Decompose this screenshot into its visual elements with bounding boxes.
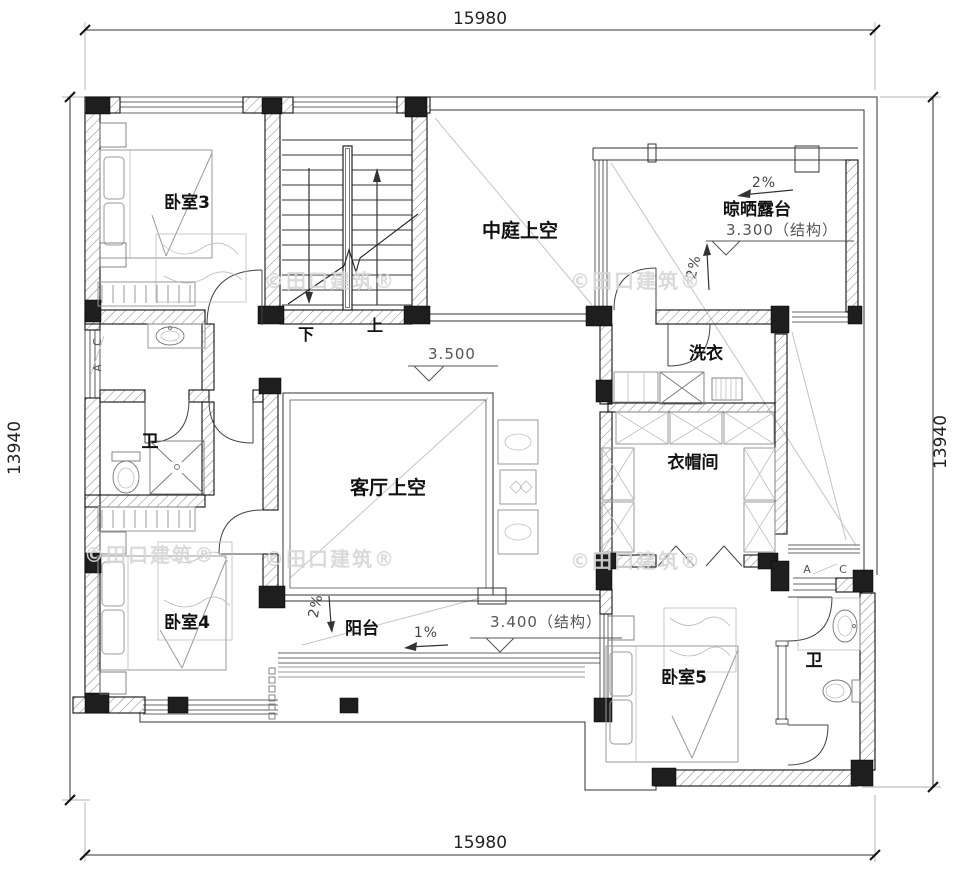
atrium-void-edge xyxy=(430,314,586,321)
room-label-closet: 衣帽间 xyxy=(668,452,719,473)
slope-balcony-side-label: 2% xyxy=(306,592,327,619)
level-marker-floor: 3.500 xyxy=(408,345,498,381)
door-bedroom3 xyxy=(207,270,262,325)
room-label-bath-left: 卫 xyxy=(142,432,159,452)
slope-terrace-top: 2% xyxy=(737,175,793,198)
dim-left-label: 13940 xyxy=(5,421,25,475)
room-label-bedroom4: 卧室4 xyxy=(164,612,210,633)
slope-terrace-top-label: 2% xyxy=(752,175,776,191)
room-labels: 卧室3 中庭上空 晾晒露台 洗衣 卫 客厅上空 衣帽间 卧室4 阳台 卧室5 卫 xyxy=(142,192,823,688)
level-marker-balcony: 3.400（结构） xyxy=(470,613,622,652)
watermark-text: ©田口建筑® xyxy=(570,549,702,573)
railing-posts xyxy=(269,668,275,719)
room-label-laundry: 洗衣 xyxy=(689,343,723,364)
window-tag-c: C xyxy=(91,338,104,346)
window-right-terrace xyxy=(788,545,860,553)
watermark-text: ©田口建筑® xyxy=(264,269,396,293)
dim-bottom-label: 15980 xyxy=(453,833,507,853)
level-floor-label: 3.500 xyxy=(428,345,476,363)
rug-bedroom5 xyxy=(664,608,736,672)
room-label-living: 客厅上空 xyxy=(350,476,426,499)
bath-right-fixtures xyxy=(798,598,860,702)
washing-machine xyxy=(660,372,704,404)
window-laundry-top xyxy=(792,312,854,322)
watermark-text: ©田口建筑® xyxy=(264,547,396,571)
floor-plan-svg: 15980 15980 13940 13940 xyxy=(0,0,960,880)
vanity-sink-left xyxy=(148,324,205,348)
level-terrace-label: 3.300（结构） xyxy=(726,221,838,239)
window-tag-a2: A xyxy=(803,563,811,576)
window-tag-right: A C xyxy=(803,563,847,576)
dimension-top: 15980 xyxy=(80,9,880,90)
slope-balcony-side: 2% xyxy=(306,592,335,633)
window-tag-c2: C xyxy=(839,563,847,576)
window-balcony-south xyxy=(278,653,600,663)
window-tag-left: A C xyxy=(91,336,104,374)
dim-right-label: 13940 xyxy=(931,415,951,469)
room-label-balcony: 阳台 xyxy=(345,618,379,639)
slope-balcony-main-label: 1% xyxy=(414,625,438,641)
window-bath-right-top xyxy=(793,578,836,590)
room-label-bath-right: 卫 xyxy=(806,651,823,671)
dryer xyxy=(712,378,742,400)
stair-down-label: 下 xyxy=(298,325,314,344)
partition-bedroom5-bath xyxy=(776,641,788,724)
watermark-text: ©田口建筑® xyxy=(84,543,216,567)
dim-top-label: 15980 xyxy=(453,9,507,29)
room-label-atrium: 中庭上空 xyxy=(482,219,558,242)
dimension-bottom: 15980 xyxy=(80,795,880,862)
nightstand xyxy=(100,672,126,694)
planters xyxy=(498,420,538,554)
wardrobe-bedroom4 xyxy=(98,507,195,531)
level-marker-terrace: 3.300（结构） xyxy=(706,221,854,255)
toilet-left xyxy=(112,452,140,493)
laundry-counter xyxy=(614,372,658,402)
window-stair-top xyxy=(293,97,397,113)
room-label-bedroom5: 卧室5 xyxy=(661,667,707,688)
watermark-text: ©田口建筑® xyxy=(570,269,702,293)
rug-bedroom3 xyxy=(156,234,246,302)
window-bedroom4-bottom xyxy=(143,700,278,714)
doors xyxy=(145,268,832,765)
door-bath-right-top xyxy=(788,597,832,641)
door-bath-right-bottom xyxy=(788,725,828,765)
nightstand xyxy=(100,123,126,147)
closet-cabinets xyxy=(602,412,775,552)
door-bedroom4 xyxy=(219,510,263,554)
door-hall-bath-left xyxy=(209,400,253,443)
stair-up-label: 上 xyxy=(367,316,383,335)
nightstand xyxy=(100,243,126,267)
room-label-bedroom3: 卧室3 xyxy=(164,192,210,213)
room-label-terrace: 晾晒露台 xyxy=(723,199,791,220)
balcony-railing xyxy=(269,667,585,719)
window-bedroom3-top xyxy=(120,97,243,113)
window-tag-a: A xyxy=(91,364,104,372)
level-balcony-label: 3.400（结构） xyxy=(490,613,602,631)
slope-balcony-main: 1% xyxy=(404,625,448,651)
floor-plan-page: 15980 15980 13940 13940 xyxy=(0,0,960,880)
bed-bedroom5 xyxy=(606,646,738,762)
